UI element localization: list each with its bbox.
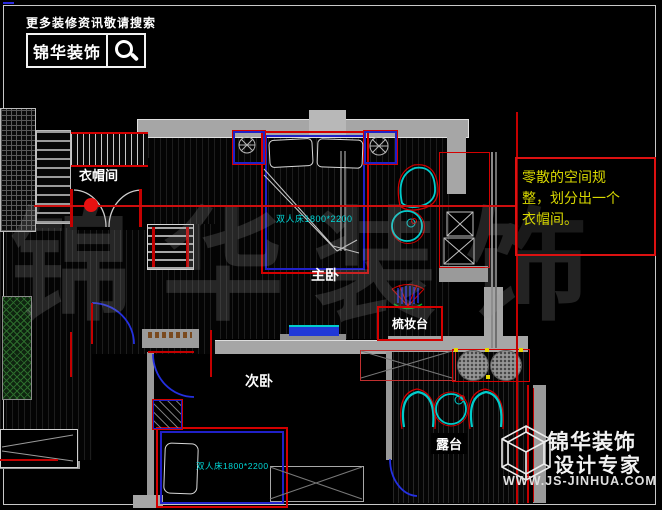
floor-plan-screenshot: 更多装修资讯敬请搜索 锦华装饰 双人床 — [0, 0, 662, 510]
search-icon-handle — [130, 52, 139, 61]
search-icon — [108, 35, 144, 66]
brand-name: 锦华装饰 — [28, 35, 108, 66]
promo-text: 更多装修资讯敬请搜索 — [26, 14, 156, 31]
top-left-link-dash — [3, 2, 14, 4]
brand-search-box: 锦华装饰 — [26, 33, 146, 68]
logo-url-text: WWW.JS-JINHUA.COM — [503, 474, 657, 488]
